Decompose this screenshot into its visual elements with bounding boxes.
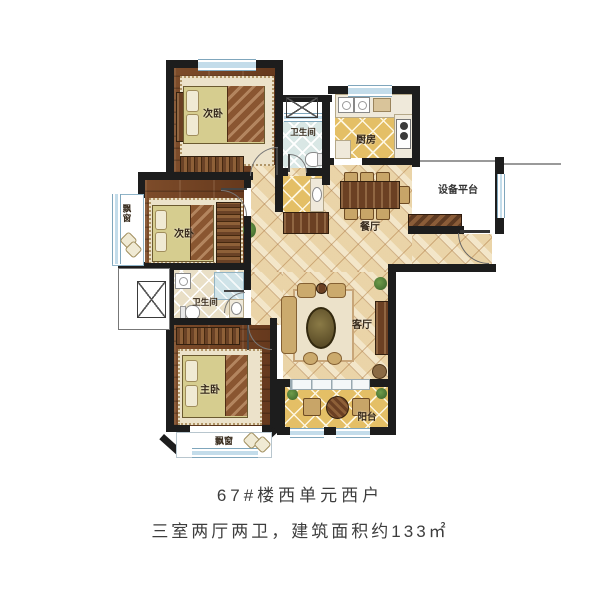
sofa <box>281 296 297 354</box>
wash-basin <box>312 187 322 202</box>
wall <box>368 379 396 387</box>
pillow <box>185 360 198 382</box>
wall <box>370 427 396 435</box>
room-label-kitchen: 厨房 <box>348 131 384 146</box>
window <box>112 194 121 264</box>
room-label-balcony: 阳台 <box>349 409 385 423</box>
wall <box>362 158 420 165</box>
shaft-x <box>137 281 166 318</box>
caption-unit: 67#楼西单元西户 <box>0 481 600 506</box>
room-label-bay-window-bottom: 飘窗 <box>206 434 242 447</box>
room-label-dining: 餐厅 <box>352 218 388 233</box>
plant <box>376 388 387 399</box>
stool <box>303 352 318 365</box>
wall <box>388 264 496 272</box>
room-label-bath-mid: 卫生间 <box>185 296 225 308</box>
stool <box>327 352 342 365</box>
sideboard <box>283 212 329 234</box>
hallway-floor <box>251 272 283 325</box>
blanket <box>227 86 264 142</box>
window <box>348 85 392 97</box>
caption-spec: 三室两厅两卫，建筑面积约133㎡ <box>0 517 600 542</box>
window <box>198 59 256 71</box>
sink <box>338 97 354 113</box>
balcony-table <box>326 396 349 419</box>
side-table <box>316 283 327 294</box>
leader-line <box>503 163 561 165</box>
platform-edge-line <box>420 160 496 162</box>
room-label-living: 客厅 <box>344 316 380 331</box>
room-label-bedroom-top: 次卧 <box>195 105 231 120</box>
wall <box>408 226 464 234</box>
armchair <box>327 283 346 298</box>
washing-machine <box>175 273 191 289</box>
armchair <box>297 283 316 298</box>
wall <box>244 216 251 270</box>
room-label-bedroom-mid: 次卧 <box>166 225 202 240</box>
balcony-sliding-door <box>290 379 370 390</box>
duct-shaft <box>286 97 318 118</box>
wall <box>244 263 251 290</box>
wall <box>412 86 420 167</box>
wardrobe <box>176 327 240 345</box>
wall <box>166 318 251 325</box>
wall <box>328 158 334 165</box>
wall <box>138 172 253 180</box>
wall <box>324 427 336 435</box>
wall <box>166 60 174 178</box>
sink <box>354 97 370 113</box>
window <box>192 448 258 458</box>
wall <box>275 60 283 212</box>
wall <box>277 381 285 435</box>
wall <box>328 86 348 94</box>
window <box>336 428 370 438</box>
platform-window <box>497 174 505 218</box>
room-label-master-bedroom: 主卧 <box>192 381 228 396</box>
wall <box>277 379 290 387</box>
plant <box>287 389 298 400</box>
blanket <box>225 355 247 416</box>
wall <box>306 168 330 176</box>
plant <box>374 277 387 290</box>
floor-plan-image: 次卧 卫生间 厨房 设备平台 餐厅 次卧 卫生间 主卧 客厅 阳台 飘窗 飘窗 … <box>0 0 600 600</box>
cutting-board <box>373 98 391 112</box>
room-label-bay-window-left: 飘窗 <box>121 197 133 229</box>
coffee-table <box>306 307 336 349</box>
stove <box>396 119 411 149</box>
room-label-equipment-platform: 设备平台 <box>434 181 482 196</box>
dining-table <box>340 181 400 209</box>
wardrobe <box>180 156 244 173</box>
window <box>290 428 324 438</box>
pouf <box>372 364 387 379</box>
room-label-bath-top: 卫生间 <box>283 126 323 138</box>
wall <box>166 425 190 432</box>
wall <box>388 264 396 435</box>
balcony-chair <box>303 398 321 416</box>
